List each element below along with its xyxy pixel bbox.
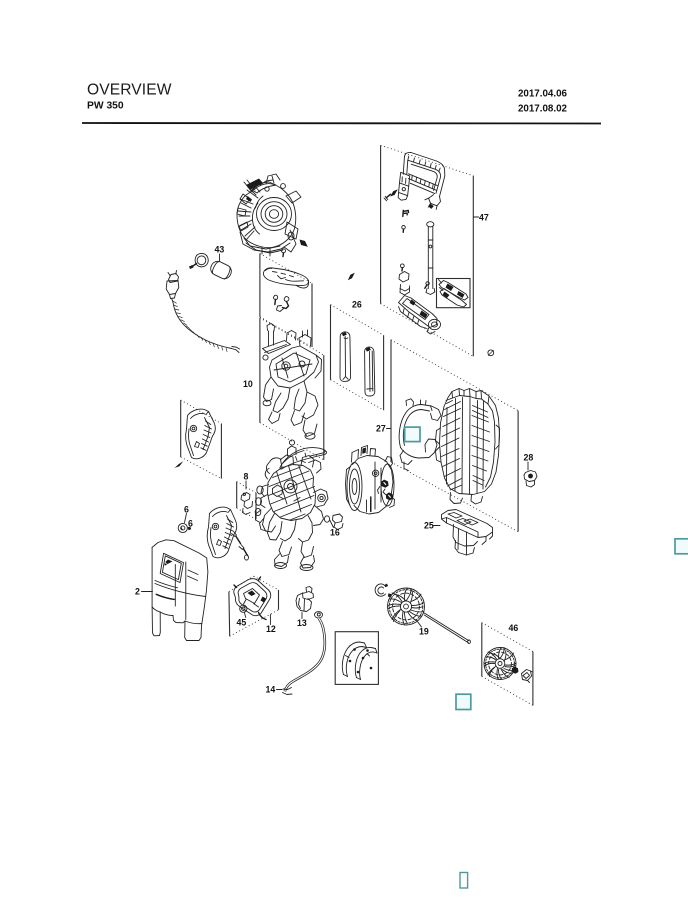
svg-text:45: 45 (237, 618, 247, 628)
svg-text:28: 28 (524, 453, 534, 463)
svg-text:14: 14 (266, 685, 276, 695)
svg-text:PW 350: PW 350 (87, 101, 124, 112)
svg-text:27: 27 (376, 424, 386, 434)
svg-text:19: 19 (419, 627, 429, 637)
svg-text:10: 10 (243, 379, 253, 389)
svg-text:8: 8 (244, 472, 249, 482)
svg-text:25: 25 (424, 521, 434, 531)
svg-text:13: 13 (297, 618, 307, 628)
svg-text:47: 47 (479, 213, 489, 223)
svg-text:6: 6 (184, 505, 189, 515)
svg-text:12: 12 (266, 624, 276, 634)
svg-text:46: 46 (509, 623, 519, 633)
svg-text:43: 43 (215, 245, 225, 255)
svg-text:26: 26 (352, 300, 362, 310)
svg-text:OVERVIEW: OVERVIEW (87, 82, 172, 99)
svg-text:2: 2 (135, 587, 140, 597)
svg-text:16: 16 (330, 528, 340, 538)
svg-text:2017.08.02: 2017.08.02 (518, 104, 568, 115)
svg-text:2017.04.06: 2017.04.06 (518, 89, 568, 100)
